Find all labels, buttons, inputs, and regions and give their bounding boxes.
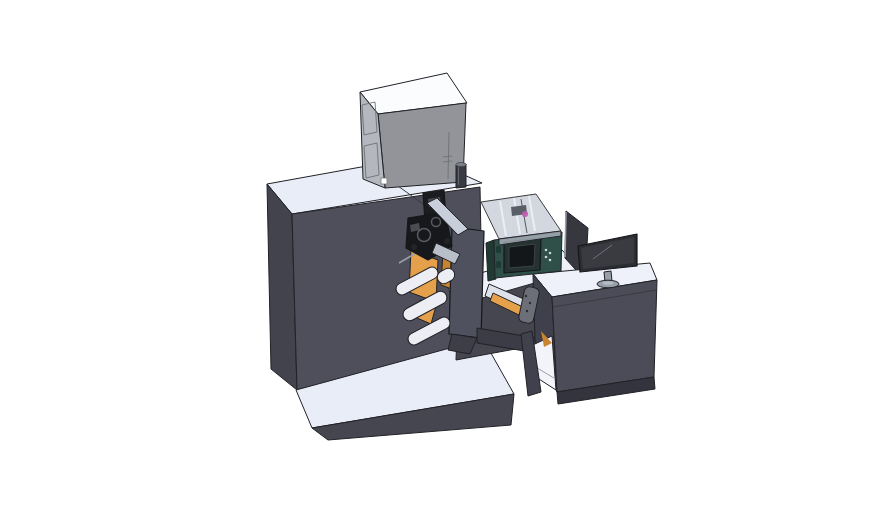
box-front-face <box>378 103 466 188</box>
exhaust-cylinder-top <box>456 163 466 167</box>
roller-hub-small <box>444 238 450 244</box>
inkjet-unit <box>481 194 562 281</box>
monitor-stand-base-inner <box>603 281 614 285</box>
desk-front-face <box>552 280 657 392</box>
unwinder-box <box>360 73 467 188</box>
magenta-cartridge <box>522 211 528 217</box>
cad-render-canvas <box>0 0 888 522</box>
bracket-hole <box>526 310 528 312</box>
bracket-hole <box>529 302 531 304</box>
rewinder-panel <box>449 227 484 338</box>
inkjet-hinge-tab <box>496 246 501 253</box>
exhaust-cylinder <box>456 164 466 188</box>
inkjet-button <box>549 259 552 262</box>
machine-assembly-drawing <box>0 0 888 522</box>
inkjet-button <box>545 249 548 252</box>
inkjet-button <box>549 252 552 255</box>
box-corner-latch <box>381 178 387 184</box>
roller-hub-small <box>411 244 417 250</box>
roller-hub-large <box>418 229 431 242</box>
inkjet-display-screen <box>509 244 535 268</box>
operator-desk <box>521 263 657 404</box>
roller-hub-mid <box>432 218 441 227</box>
inkjet-hinge-tab <box>496 261 501 268</box>
back-panel-edge <box>565 212 566 257</box>
inkjet-button <box>545 256 548 259</box>
bracket-hole <box>525 295 527 297</box>
